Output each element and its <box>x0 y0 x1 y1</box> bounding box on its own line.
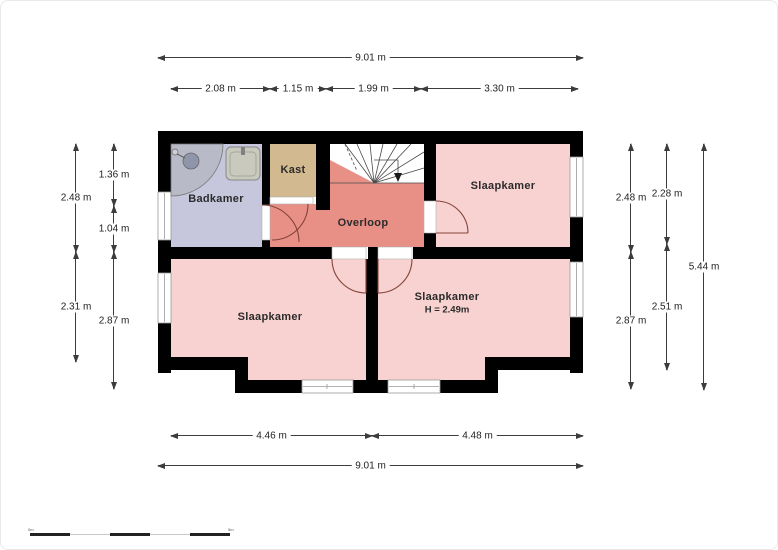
dim-bottom-total: 9.01 m <box>158 465 583 466</box>
shower-head-icon <box>183 153 199 169</box>
dim-left-outer2-label: 2.31 m <box>57 302 96 313</box>
scale-bar-start-label: 0m <box>28 527 34 532</box>
wall-bottom-right <box>485 357 583 370</box>
wall-left <box>158 131 171 373</box>
dim-top-seg1: 2.08 m <box>171 88 270 89</box>
label-slaapkamer-top-right: Slaapkamer <box>471 180 536 192</box>
dim-bottom-seg1-label: 4.46 m <box>252 431 291 442</box>
dim-top-seg4: 3.30 m <box>421 88 578 89</box>
dim-top-seg4-label: 3.30 m <box>480 84 519 95</box>
dim-top-seg2: 1.15 m <box>270 88 326 89</box>
dim-top-seg3: 1.99 m <box>326 88 421 89</box>
dim-bottom-seg1: 4.46 m <box>171 435 372 436</box>
wall-bottom-left <box>158 357 248 370</box>
dim-left-inner2: 1.04 m <box>113 206 114 252</box>
dim-right-middle1: 2.28 m <box>666 144 667 244</box>
scale-bar-segment <box>30 533 70 536</box>
floorplan-page: Badkamer Kast Overloop Slaapkamer Slaapk… <box>0 0 778 550</box>
wall-middle-center <box>368 247 378 259</box>
dim-top-seg1-label: 2.08 m <box>201 84 240 95</box>
dim-right-middle1-label: 2.28 m <box>648 189 687 200</box>
dim-left-outer2: 2.31 m <box>75 252 76 362</box>
dim-right-inner1-label: 2.48 m <box>612 193 651 204</box>
dim-right-middle2-label: 2.51 m <box>648 302 687 313</box>
label-badkamer: Badkamer <box>188 193 244 205</box>
dim-bottom-total-label: 9.01 m <box>351 461 390 472</box>
dim-left-outer1: 2.48 m <box>75 144 76 252</box>
scale-bar-segment <box>190 533 230 536</box>
dim-left-inner3-label: 2.87 m <box>95 315 134 326</box>
dim-right-inner2-label: 2.87 m <box>612 315 651 326</box>
dim-right-inner1: 2.48 m <box>630 144 631 252</box>
dim-top-seg2-label: 1.15 m <box>279 84 318 95</box>
wall-dormer-bottom <box>235 380 498 393</box>
label-ceiling-height: H = 2.49m <box>425 305 470 316</box>
dim-top-seg3-label: 1.99 m <box>354 84 393 95</box>
room-overloop-link <box>316 210 330 247</box>
wall-top <box>158 131 583 144</box>
dim-bottom-seg2: 4.48 m <box>372 435 583 436</box>
dim-top-total-label: 9.01 m <box>351 53 390 64</box>
dim-top-total: 9.01 m <box>158 57 583 58</box>
dim-bottom-seg2-label: 4.48 m <box>458 431 497 442</box>
dim-right-total: 5.44 m <box>703 144 704 390</box>
scale-bar-end-label: 5m <box>228 527 234 532</box>
wall-middle-right <box>413 247 570 259</box>
room-slaapkamer-top-right <box>436 144 570 247</box>
shower-valve-icon <box>172 149 178 155</box>
wall-bedroom-divider <box>366 259 378 380</box>
wall-kast-right <box>316 131 330 210</box>
room-overloop-corridor <box>270 204 316 247</box>
wall-badkamer-right <box>262 144 270 205</box>
dim-left-inner3: 2.87 m <box>113 252 114 389</box>
dim-left-inner1-label: 1.36 m <box>95 170 134 181</box>
wall-middle-left <box>171 247 332 259</box>
label-kast: Kast <box>280 164 305 176</box>
dim-left-inner1: 1.36 m <box>113 144 114 206</box>
label-slaapkamer-bottom-left: Slaapkamer <box>238 311 303 323</box>
dim-left-inner2-label: 1.04 m <box>95 224 134 235</box>
wall-overloop-right <box>424 144 436 201</box>
dim-right-middle2: 2.51 m <box>666 244 667 370</box>
dim-right-inner2: 2.87 m <box>630 252 631 389</box>
label-overloop: Overloop <box>338 217 389 229</box>
sink-tap-icon <box>241 147 245 155</box>
label-slaapkamer-bottom-right: Slaapkamer <box>415 291 480 303</box>
scale-bar-segment <box>110 533 150 536</box>
dim-left-outer1-label: 2.48 m <box>57 193 96 204</box>
room-overloop <box>330 183 424 247</box>
dim-right-total-label: 5.44 m <box>685 262 724 273</box>
